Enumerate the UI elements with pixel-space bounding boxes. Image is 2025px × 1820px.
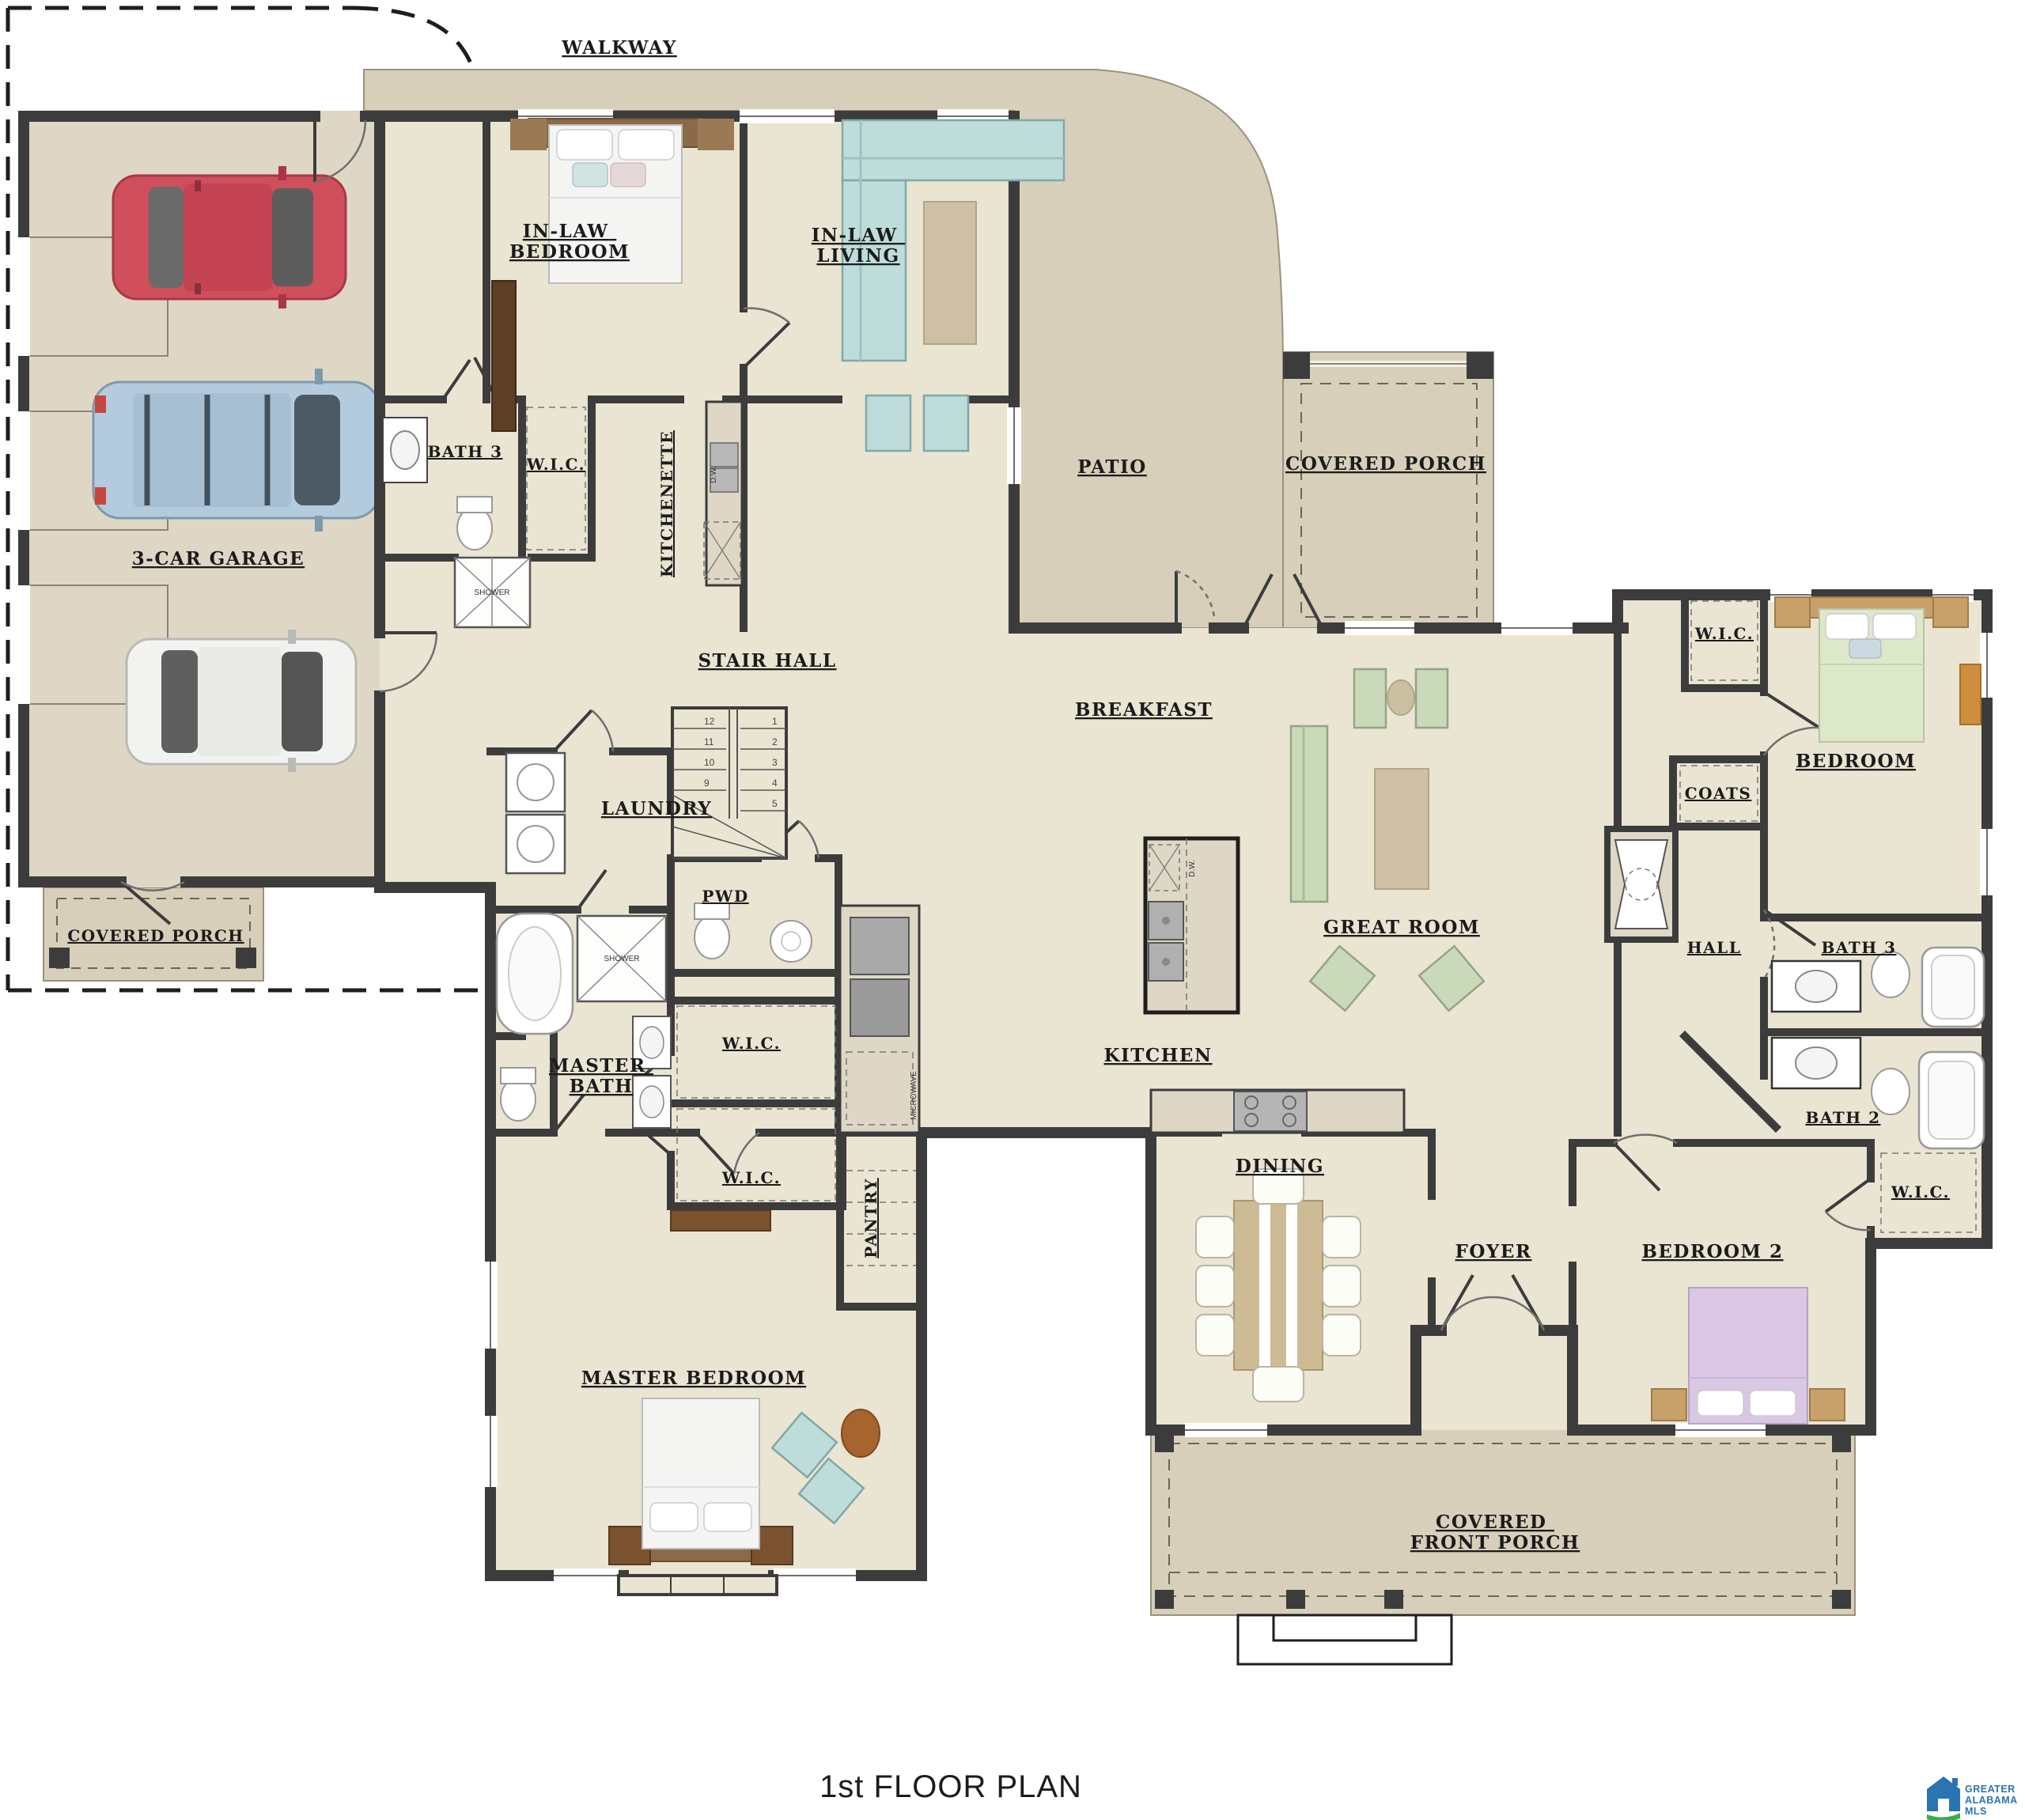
- oven-cabinet: [840, 906, 919, 1133]
- label-hall: HALL: [1687, 938, 1742, 957]
- stair-number: 10: [704, 757, 715, 768]
- mls-green-swoosh: [1927, 1813, 1960, 1820]
- label-wic-bedroom2: W.I.C.: [1891, 1182, 1950, 1201]
- porch-post: [1155, 1433, 1174, 1452]
- label-wic-inlaw: W.I.C.: [526, 455, 585, 474]
- inlaw-wardrobe: [492, 281, 516, 431]
- label-kitchen: KITCHEN: [1104, 1045, 1213, 1066]
- stair-number: 2: [772, 736, 778, 747]
- porch-post: [236, 948, 256, 968]
- label-wic-master-bottom: W.I.C.: [721, 1168, 781, 1187]
- mls-logo-line2: ALABAMA: [1965, 1795, 2018, 1806]
- fireplace: [1607, 829, 1675, 940]
- label-wic-bedroom: W.I.C.: [1694, 624, 1754, 643]
- porch-post: [1832, 1590, 1851, 1609]
- car-red: [113, 166, 346, 308]
- label-pwd: PWD: [702, 887, 748, 906]
- label-great-room: GREAT ROOM: [1323, 917, 1480, 938]
- stair-number: 1: [772, 716, 778, 727]
- label-dining: DINING: [1236, 1156, 1324, 1177]
- stair-number: 4: [772, 778, 778, 789]
- inlaw-ottoman: [866, 395, 910, 451]
- car-blue-suv: [93, 369, 380, 532]
- label-in-law-bedroom: IN-LAW BEDROOM: [509, 221, 630, 263]
- label-kitchenette: KITCHENETTE: [657, 430, 676, 577]
- label-bath3-right: BATH 3: [1822, 938, 1897, 957]
- label-breakfast: BREAKFAST: [1075, 699, 1213, 721]
- porch-post: [1832, 1433, 1851, 1452]
- label-microwave: MICROWAVE: [910, 1071, 918, 1120]
- mls-logo-line1: GREATER: [1965, 1784, 2016, 1795]
- inlaw-ottoman: [924, 395, 968, 451]
- label-master-bedroom: MASTER BEDROOM: [581, 1368, 806, 1389]
- front-steps-inner: [1274, 1615, 1416, 1640]
- porch-post: [1155, 1590, 1174, 1609]
- stairs: 1 2 3 4 5 12 11 10 9: [672, 708, 786, 858]
- inlaw-rug: [924, 202, 976, 344]
- car-white: [127, 630, 356, 772]
- mls-logo-line3: MLS: [1965, 1806, 1987, 1817]
- label-stair-hall: STAIR HALL: [698, 650, 836, 672]
- label-dw-island: D.W.: [1188, 860, 1197, 877]
- title-block: 1st FLOOR PLAN: [819, 1769, 1082, 1804]
- floor-plan-drawing: 1 2 3 4 5 12 11 10 9: [0, 0, 2025, 1820]
- label-bath2: BATH 2: [1806, 1108, 1881, 1127]
- label-laundry: LAUNDRY: [601, 798, 712, 819]
- label-garage: 3-CAR GARAGE: [132, 548, 305, 569]
- label-coats: COATS: [1685, 784, 1752, 803]
- stair-number: 11: [704, 736, 714, 747]
- stair-number: 5: [772, 798, 778, 809]
- label-shower-master: SHOWER: [604, 955, 640, 963]
- label-wic-master-top: W.I.C.: [721, 1034, 781, 1053]
- label-bath3-inlaw: BATH 3: [428, 442, 503, 461]
- mls-logo: GREATER ALABAMA MLS: [1927, 1776, 2018, 1820]
- porch-post: [1283, 352, 1310, 379]
- label-bedroom2: BEDROOM 2: [1641, 1241, 1783, 1262]
- porch-post: [1384, 1590, 1403, 1609]
- label-walkway: WALKWAY: [561, 37, 677, 59]
- floor-plan-page: 1 2 3 4 5 12 11 10 9: [0, 0, 2025, 1820]
- stair-number: 9: [704, 778, 710, 789]
- label-dw-kitchenette: D.W.: [710, 466, 718, 483]
- label-patio: PATIO: [1077, 456, 1147, 478]
- porch-post: [1286, 1590, 1305, 1609]
- porch-post: [49, 948, 70, 968]
- stair-number: 3: [772, 757, 778, 768]
- label-covered-porch-right: COVERED PORCH: [1285, 453, 1486, 475]
- label-covered-porch-left: COVERED PORCH: [67, 926, 244, 945]
- label-shower-inlaw: SHOWER: [475, 588, 510, 597]
- mls-house-chimney: [1952, 1778, 1958, 1786]
- label-in-law-living: IN-LAW LIVING: [812, 225, 906, 267]
- bay-window: [619, 1576, 777, 1595]
- covered-porch-right-floor: [1283, 352, 1493, 628]
- stair-number: 12: [704, 716, 715, 727]
- label-bedroom: BEDROOM: [1796, 751, 1916, 772]
- kitchenette-counter: [704, 402, 742, 585]
- label-foyer: FOYER: [1455, 1241, 1532, 1262]
- page-title: 1st FLOOR PLAN: [819, 1769, 1082, 1804]
- wood-bench: [671, 1210, 770, 1231]
- range-counter: [1151, 1090, 1404, 1133]
- label-pantry: PANTRY: [861, 1178, 880, 1258]
- porch-post: [1467, 352, 1493, 379]
